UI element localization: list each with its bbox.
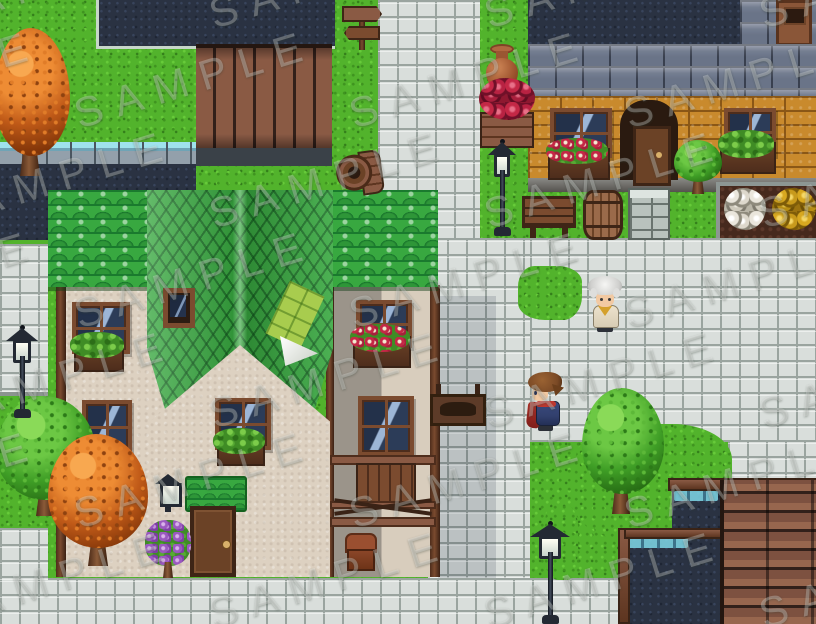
balcony: [330, 455, 436, 533]
slate-roof: [528, 44, 816, 96]
sign-board: [522, 196, 576, 228]
sign-graphic: [440, 402, 476, 416]
sign-arrow: [342, 6, 382, 22]
bush-box: [213, 428, 265, 454]
old-man-sideburn: [590, 288, 597, 298]
street-lamp: [6, 328, 38, 418]
old-man-sideburn: [613, 288, 620, 298]
brick-house: [528, 0, 816, 192]
corner-post: [430, 285, 440, 577]
dock-planks: [720, 480, 816, 624]
lantern-bracket: [165, 504, 171, 512]
tree-canopy: [0, 28, 70, 156]
house-door[interactable]: [190, 506, 236, 577]
bridge-planks: [196, 44, 332, 148]
path-pond-side: [728, 440, 816, 482]
lamp-base: [542, 615, 559, 624]
balcony-rail: [330, 517, 436, 527]
red-roses: [479, 78, 535, 120]
direction-sign[interactable]: [342, 4, 382, 50]
sign-leg: [562, 228, 568, 238]
player-hero-boy[interactable]: [524, 372, 566, 432]
pond-wood-trim: [624, 528, 724, 539]
wooden-chair: [343, 533, 375, 575]
door-recess: [620, 100, 678, 180]
chimney: [776, 0, 812, 46]
purple-blooms: [145, 520, 191, 566]
boy-scarf: [536, 401, 556, 407]
lantern-glass: [160, 483, 182, 507]
barrel: [583, 190, 623, 240]
lamp-pole: [548, 552, 553, 616]
tree-canopy: [582, 388, 664, 494]
rose-planter: [479, 82, 535, 148]
wall-lantern: [153, 474, 183, 520]
orange-tree: [0, 28, 70, 178]
house-shadow: [438, 296, 496, 578]
sign-arrow: [344, 26, 380, 40]
red-flowers: [546, 138, 608, 164]
small-tree: [674, 140, 722, 194]
lamp-pole: [500, 170, 505, 228]
water-pool-top: [96, 0, 335, 49]
fallen-barrel: [333, 143, 386, 199]
tree-canopy: [48, 434, 148, 548]
game-map: SAMPLESAMPLESAMPLESAMPLESAMPLESAMPLESAMP…: [0, 0, 816, 624]
bush-box: [718, 130, 774, 158]
tree-canopy: [674, 140, 722, 182]
white-roses: [724, 188, 766, 230]
lamp-pole: [20, 356, 25, 410]
street-lamp: [488, 142, 516, 236]
bush-box: [70, 332, 124, 358]
yellow-roses: [772, 188, 816, 230]
red-flowers: [350, 324, 410, 352]
purple-flower-bush: [145, 520, 191, 578]
grass-patch: [518, 266, 582, 320]
hanging-sign[interactable]: [430, 384, 486, 426]
path-west-patch: [0, 528, 48, 580]
pond-edge-highlight: [674, 491, 718, 501]
npc-old-man[interactable]: [588, 276, 622, 332]
street-lamp: [530, 524, 570, 624]
chair-seat: [347, 549, 375, 571]
boy-eye: [534, 391, 537, 395]
orange-tree: [48, 434, 148, 568]
old-man-eyes: [600, 298, 603, 301]
pond-water: [624, 537, 720, 624]
flower-bed: [716, 182, 816, 238]
window: [358, 396, 414, 456]
notice-sign[interactable]: [522, 196, 576, 238]
barrel-band: [586, 201, 620, 204]
lamp-base: [14, 409, 31, 418]
chimney-opening: [784, 7, 806, 25]
attic-pane: [170, 295, 186, 317]
path-southeast: [530, 296, 816, 442]
stone-pillar: [628, 188, 670, 240]
pillar-cap: [630, 190, 668, 198]
door-knob: [656, 152, 662, 158]
barrel-band: [586, 225, 620, 228]
attic-window: [163, 288, 195, 328]
pond-wood-trim: [618, 528, 630, 624]
sign-leg: [530, 228, 536, 238]
brick-house-door[interactable]: [633, 126, 671, 186]
pond-edge-highlight: [628, 538, 688, 548]
door-knob: [222, 540, 231, 549]
round-tree: [582, 388, 664, 516]
lamp-base: [494, 227, 511, 236]
